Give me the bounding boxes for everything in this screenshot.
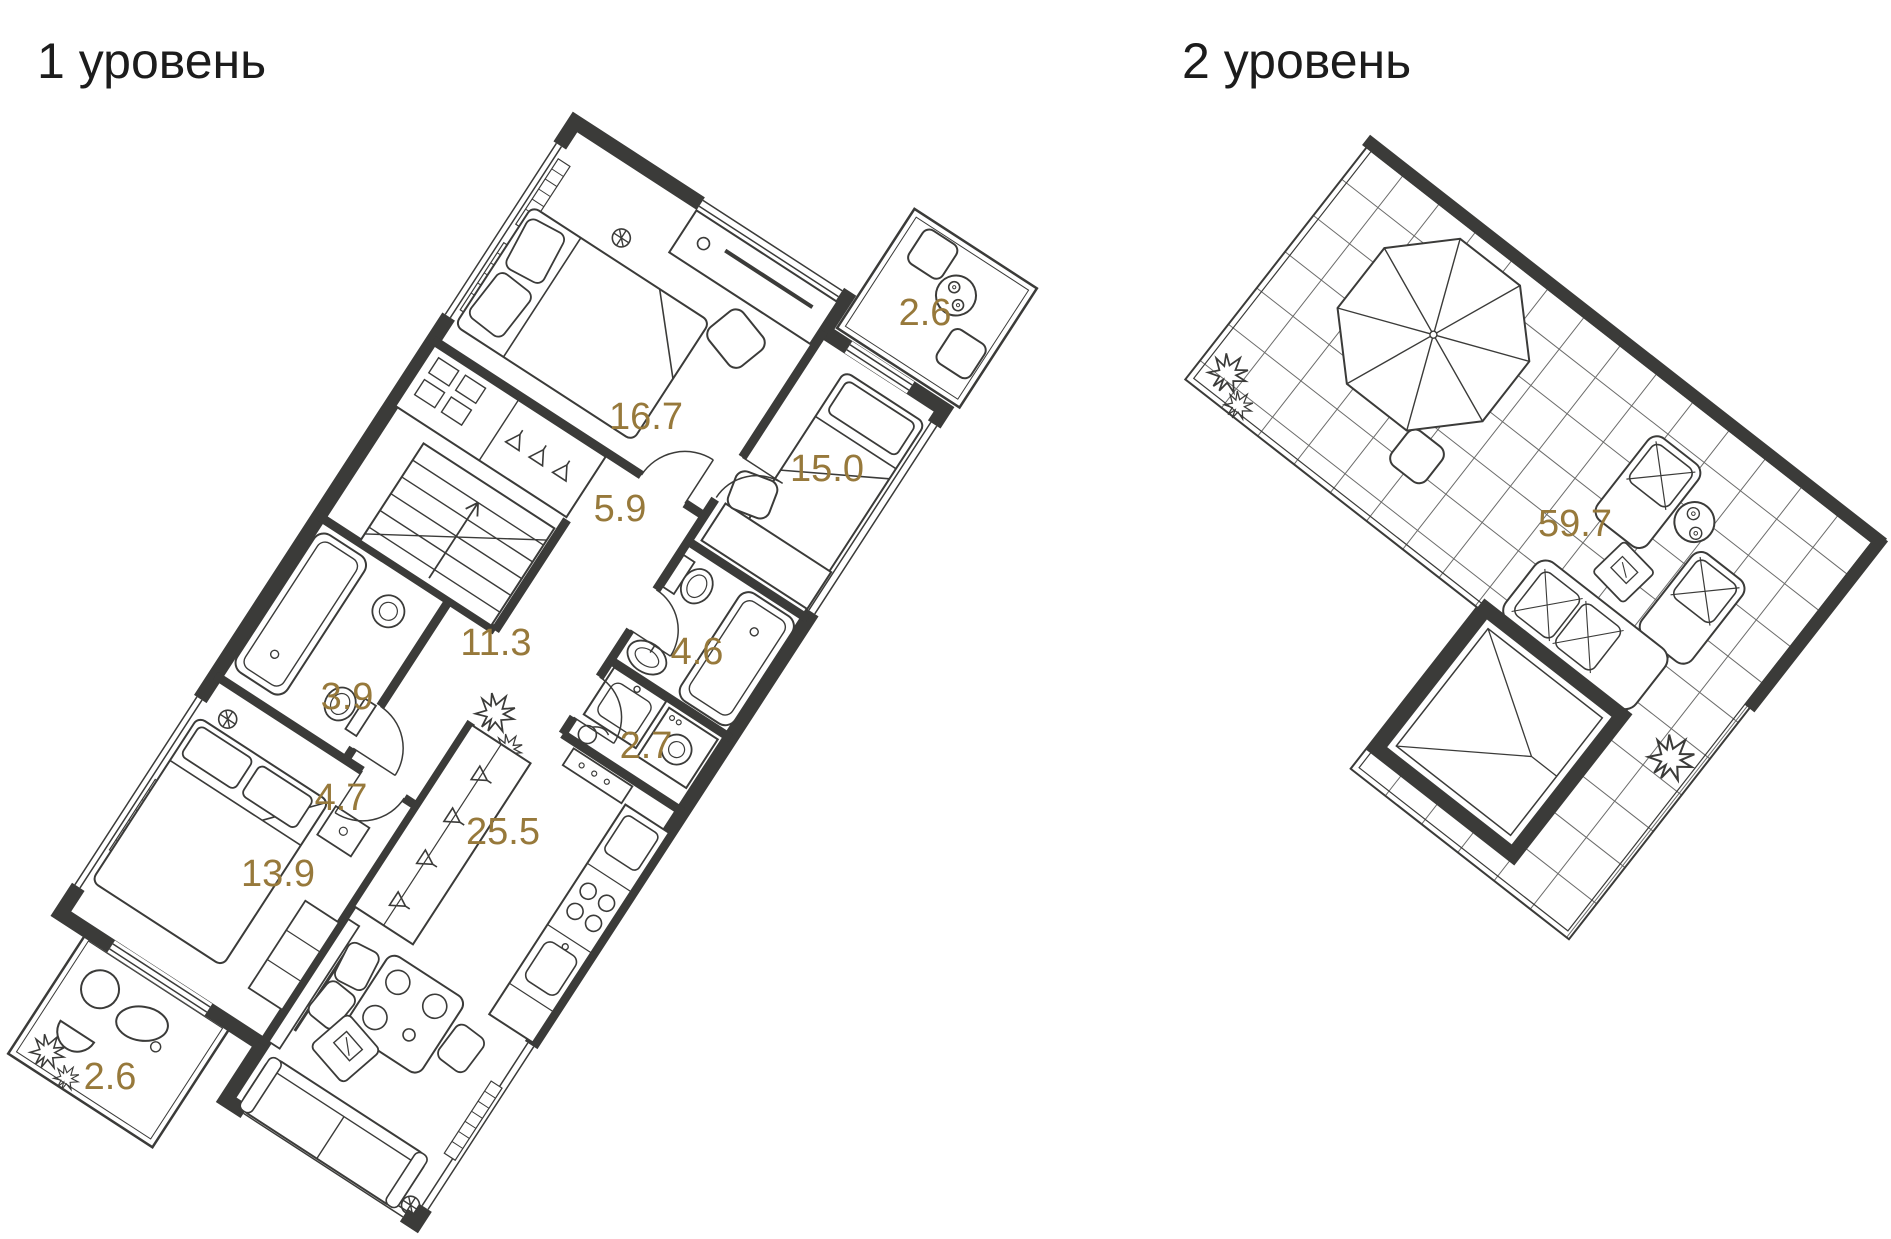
area-label-terrace: 59.7 (1538, 503, 1612, 545)
area-label-bedroom-top: 16.7 (609, 396, 683, 438)
floorplan-canvas: 1 уровень 2 уровень (0, 0, 1891, 1239)
area-label-living-kitchen: 25.5 (466, 811, 540, 853)
area-label-balcony-bottom: 2.6 (84, 1056, 137, 1098)
floorplan-page: 1 уровень 2 уровень (0, 0, 1891, 1239)
area-label-laundry: 2.7 (620, 725, 673, 767)
area-label-hallway: 4.7 (315, 777, 368, 819)
level2-title: 2 уровень (1182, 33, 1411, 89)
area-label-bedroom-right: 15.0 (790, 448, 864, 490)
area-label-balcony-top: 2.6 (899, 292, 952, 334)
level1-title: 1 уровень (37, 33, 266, 89)
area-label-hall: 5.9 (594, 488, 647, 530)
area-label-bathroom-right: 4.6 (671, 631, 724, 673)
area-label-bathroom-left: 3.9 (321, 676, 374, 718)
level2-plan (1055, 136, 1886, 942)
area-label-bedroom-bottom: 13.9 (241, 853, 315, 895)
area-label-corridor: 11.3 (460, 622, 531, 664)
